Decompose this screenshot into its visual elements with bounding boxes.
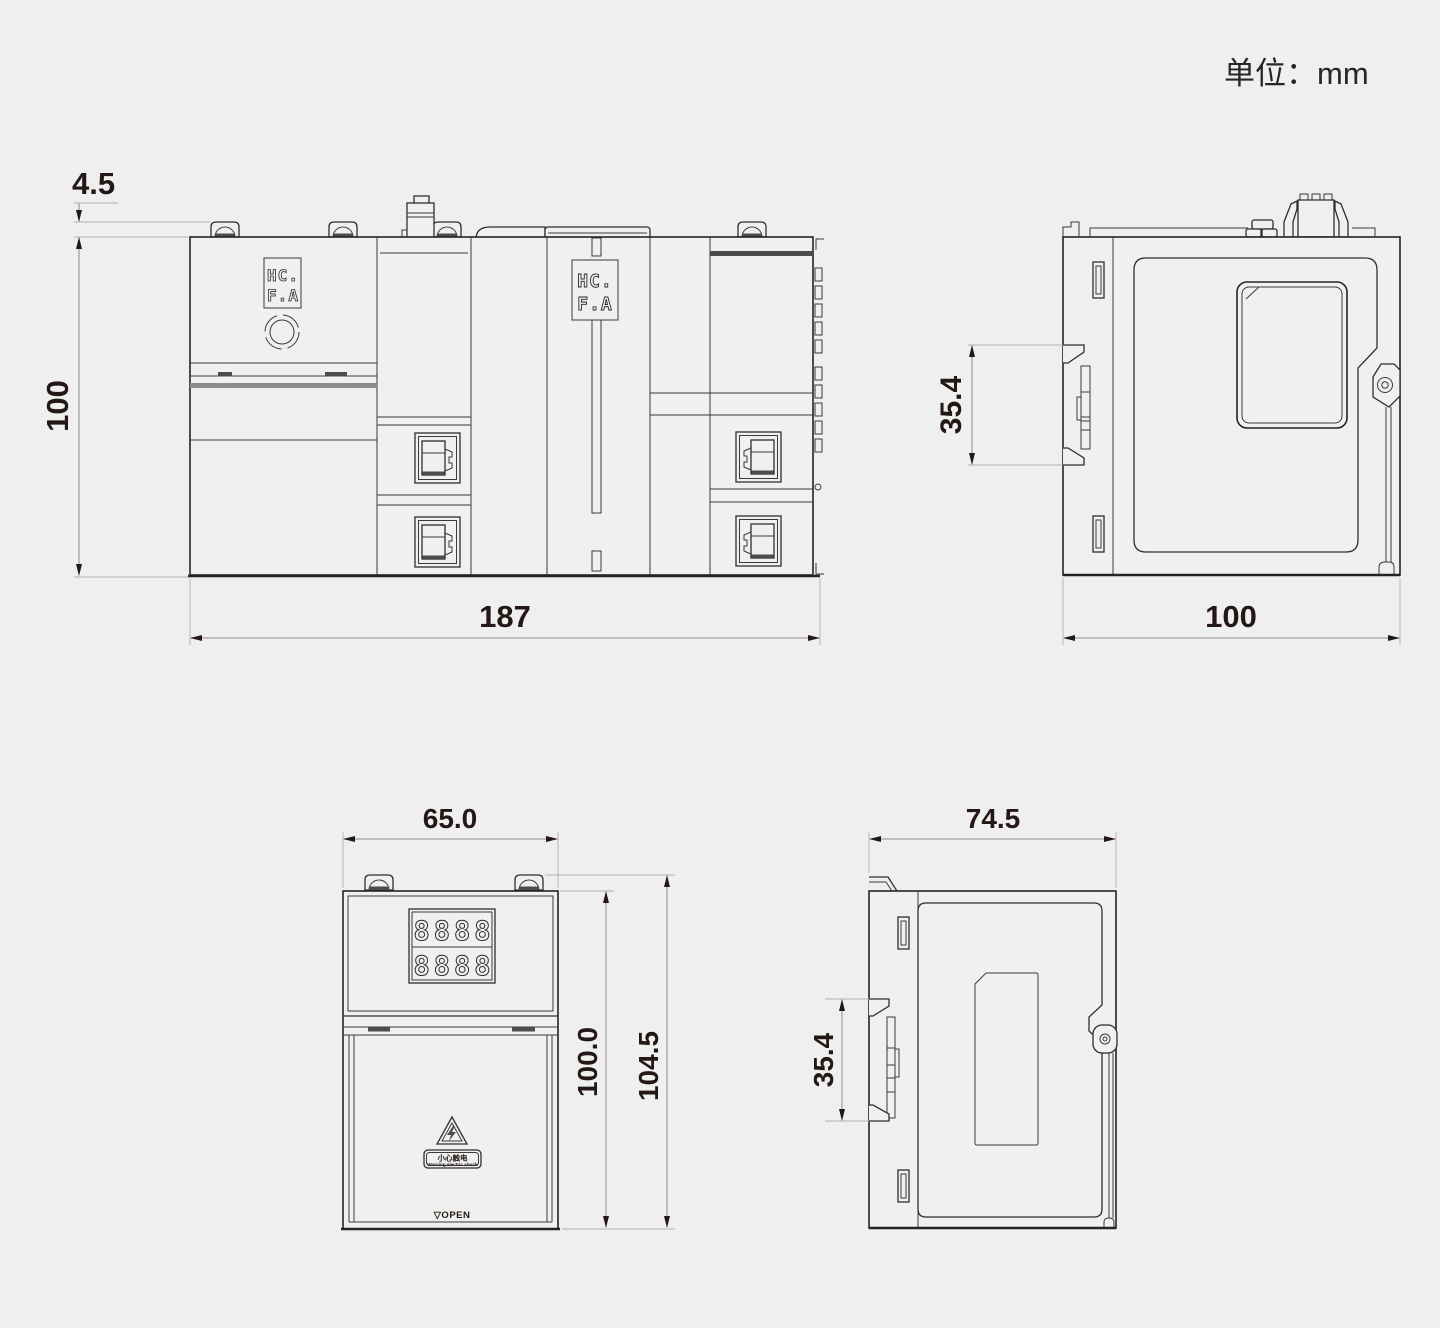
mounting-clip: [515, 875, 543, 890]
svg-text:35.4: 35.4: [935, 375, 968, 434]
dim-din-clip: 35.4: [808, 999, 869, 1121]
svg-text:100: 100: [1205, 599, 1257, 634]
mounting-clip: [365, 875, 393, 890]
svg-text:8888: 8888: [413, 951, 494, 982]
svg-text:104.5: 104.5: [633, 1031, 664, 1101]
svg-text:F.A: F.A: [577, 294, 613, 315]
svg-text:HC.: HC.: [577, 271, 613, 292]
dim-din-clip: 35.4: [935, 345, 1063, 465]
dim-module-depth: 74.5: [869, 803, 1116, 888]
svg-text:65.0: 65.0: [423, 803, 478, 834]
assembly-front-view: HC. F.A: [40, 166, 824, 645]
dim-module-total-height: 104.5: [545, 875, 675, 1229]
dim-assembly-height: 100: [40, 237, 188, 577]
open-label: ▽OPEN: [433, 1210, 471, 1221]
mounting-clip: [211, 222, 239, 237]
unit-label: 单位：mm: [1224, 56, 1369, 91]
dim-side-depth: 100: [1063, 578, 1400, 645]
svg-text:F.A: F.A: [267, 286, 299, 305]
svg-text:8888: 8888: [413, 916, 494, 947]
top-clip: [869, 877, 897, 891]
bus-connector-teeth: [815, 239, 824, 574]
svg-text:100: 100: [40, 380, 75, 432]
assembly-side-view: 35.4 100: [935, 194, 1400, 645]
dim-assembly-width: 187: [190, 578, 820, 645]
mounting-clip: [433, 222, 461, 237]
io-module-front-view: 8888 8888 小心触电: [341, 803, 675, 1229]
svg-text:HC.: HC.: [267, 266, 299, 285]
svg-text:35.4: 35.4: [808, 1032, 839, 1087]
svg-text:187: 187: [479, 599, 531, 634]
mounting-clip: [329, 222, 357, 237]
side-body: [1063, 237, 1400, 575]
seven-segment-display: 8888 8888: [409, 909, 495, 983]
svg-text:100.0: 100.0: [572, 1027, 603, 1097]
hcfa-logo: HC. F.A: [264, 258, 301, 308]
screw-boss: [1093, 1025, 1117, 1053]
top-connector-latched: [1284, 194, 1348, 237]
svg-text:Warning electric shock: Warning electric shock: [427, 1162, 478, 1167]
top-power-connector: [402, 196, 434, 238]
top-connector-small: [1246, 220, 1277, 237]
dimension-drawing: 单位：mm HC. F.A: [0, 0, 1440, 1328]
dim-clip-height: 4.5: [72, 166, 210, 222]
mounting-clip: [738, 222, 766, 237]
svg-text:74.5: 74.5: [966, 803, 1021, 834]
dim-module-body-height: 100.0: [560, 891, 614, 1227]
svg-text:4.5: 4.5: [72, 166, 115, 201]
io-module-side-view: 74.5 35.4: [808, 803, 1117, 1228]
